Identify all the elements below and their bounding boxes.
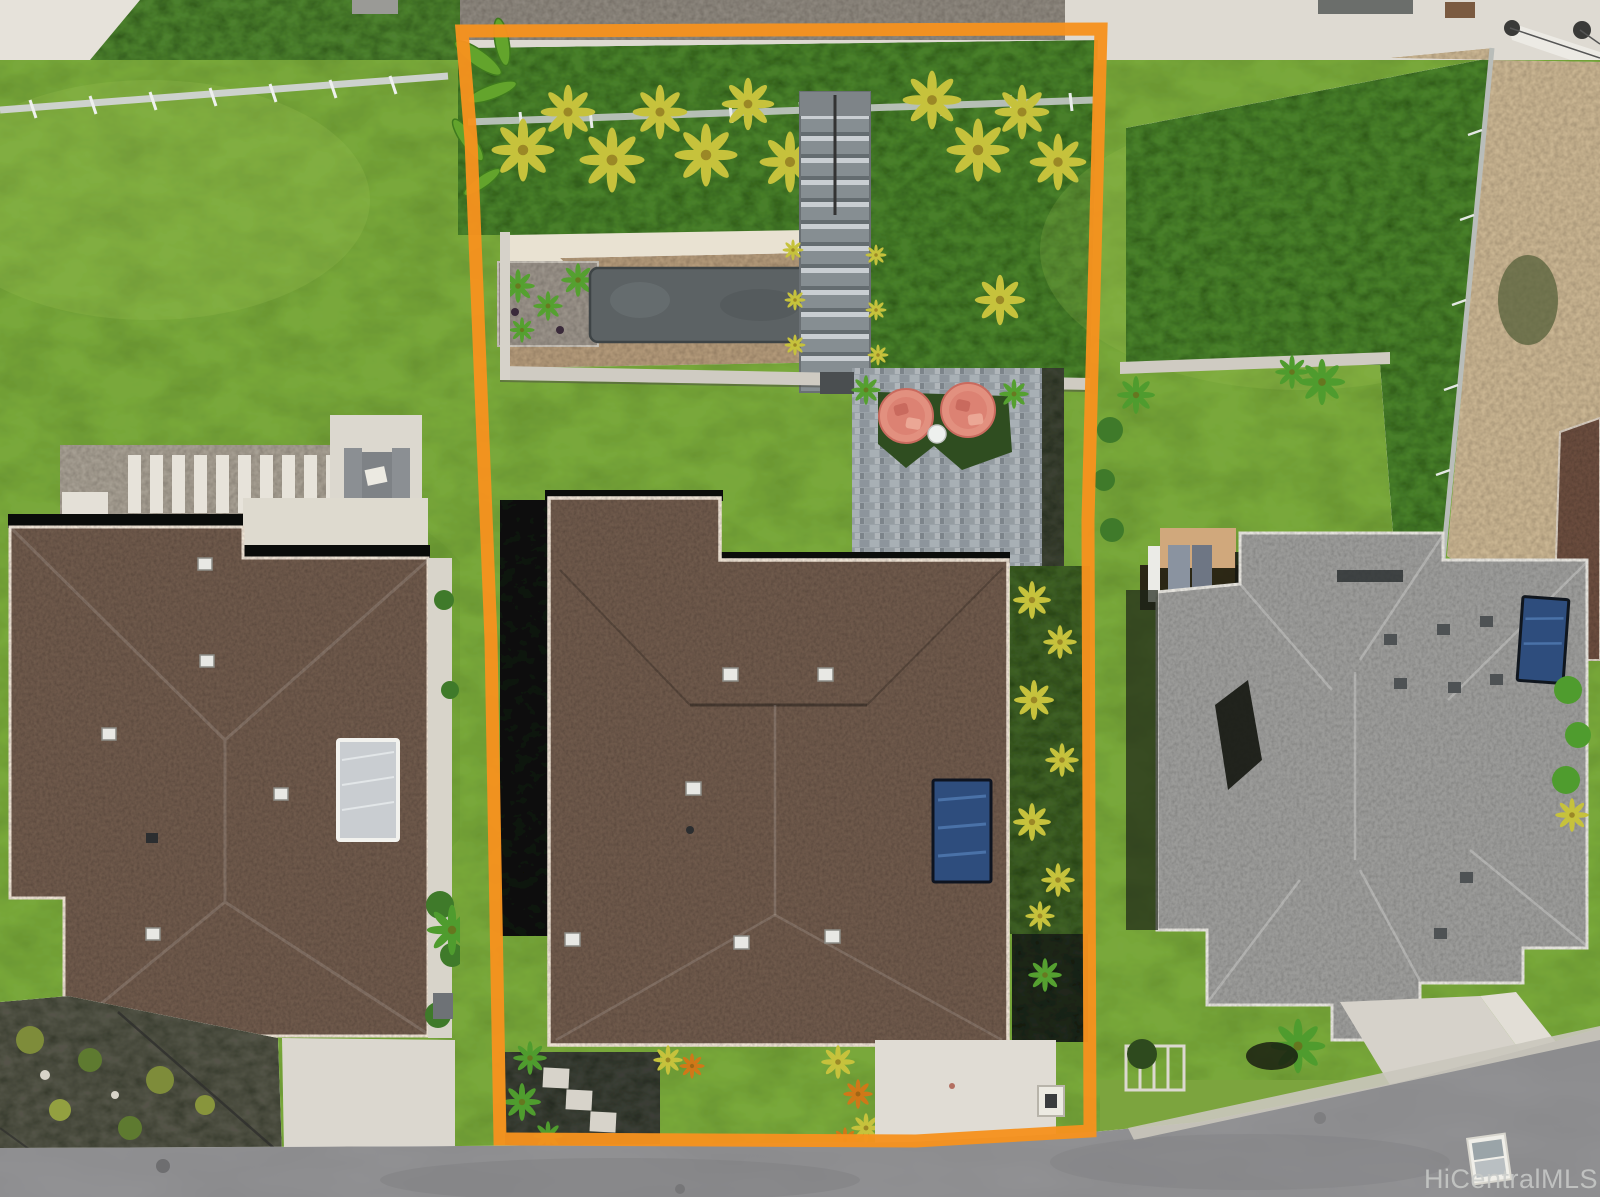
gable-vent [1337,570,1403,582]
patio-table [352,0,398,14]
gutter-shadow [243,545,430,558]
solar-panel [1517,596,1569,683]
patio-plant [851,375,880,404]
manhole [1314,1112,1326,1124]
garden-stairs [800,92,870,392]
patio-plant [999,379,1028,408]
side-table [928,425,946,443]
solar-water-heater [338,740,398,840]
aerial-scene [0,0,1600,1197]
utility-box [1038,1086,1064,1116]
brown-box [1445,2,1475,18]
wall-return [500,232,510,380]
plant-shadow [1246,1042,1298,1070]
manhole [156,1159,170,1173]
tree-shadow [1498,255,1558,345]
ac-unit [433,993,453,1019]
dark-mat [1318,0,1413,14]
left-driveway [282,1038,455,1155]
roof-vent-dark [146,833,158,843]
egg-chair [941,383,995,437]
right-lot [1040,48,1600,1108]
solar-panel [933,780,991,882]
side-walk [243,498,428,545]
shaded-garden [1012,934,1088,1042]
shrub [1127,1039,1157,1069]
bench [820,372,854,394]
left-lot [0,60,510,1197]
subject-house-roof [549,498,1008,1045]
subject-lot [448,17,1100,1170]
egg-chair [879,389,933,443]
aerial-photo: HiCentralMLS [0,0,1600,1197]
patio-border [1042,368,1064,568]
side-shade [1126,590,1158,930]
watermark: HiCentralMLS [1424,1164,1598,1195]
side-yard-shadow [500,500,552,936]
